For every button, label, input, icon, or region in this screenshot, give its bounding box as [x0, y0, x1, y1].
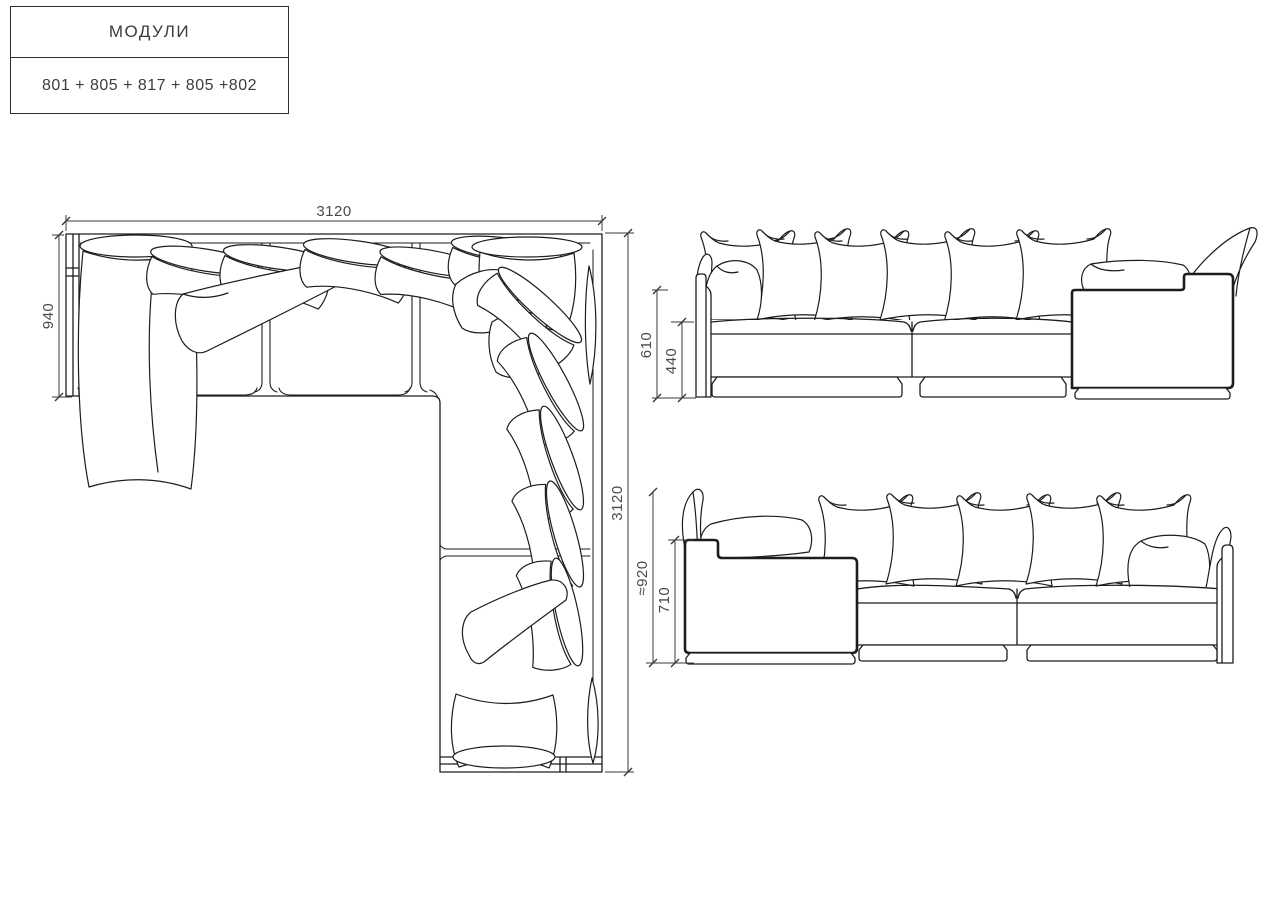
pillow [588, 678, 599, 763]
title-block: МОДУЛИ 801 + 805 + 817 + 805 +802 [10, 6, 289, 114]
title-block-title: МОДУЛИ [11, 7, 288, 58]
front-dim-back-height: 610 [638, 332, 655, 359]
pillow-fold [706, 231, 790, 241]
pillow [705, 261, 762, 320]
seat-plinths [712, 377, 1066, 397]
plan-dim-width-top: 3120 [316, 203, 351, 220]
plan-dim-depth-left: 940 [40, 303, 57, 330]
pillow [453, 746, 555, 768]
corner-module-box [1072, 274, 1233, 388]
side-dim-back-height: 710 [656, 587, 673, 614]
side-elevation-view: ≈920 710 [630, 460, 1280, 695]
plan-pillows [78, 231, 598, 768]
plan-view: 3120 940 3120 [40, 195, 665, 795]
left-side-profile [696, 274, 711, 397]
front-elevation-dimensions [652, 286, 696, 402]
pillow [585, 266, 596, 384]
corner-module-box [685, 540, 857, 653]
pillow-fold [762, 229, 846, 239]
corner-plinth [686, 653, 855, 664]
corner-plinth [1075, 388, 1230, 399]
seat-plinths [859, 645, 1217, 661]
plan-armrest-left [66, 234, 79, 396]
side-dim-overall-height: ≈920 [634, 560, 651, 595]
title-block-modules: 801 + 805 + 817 + 805 +802 [11, 58, 288, 113]
front-elevation-view: 610 440 [630, 195, 1280, 430]
right-side-profile [1217, 545, 1233, 663]
plan-dim-length-right: 3120 [609, 485, 626, 520]
front-dim-seat-height: 440 [663, 348, 680, 375]
pillow [472, 237, 582, 257]
drawing-canvas: МОДУЛИ 801 + 805 + 817 + 805 +802 [0, 0, 1280, 904]
pillow [1128, 535, 1210, 588]
pillow [1082, 260, 1191, 290]
